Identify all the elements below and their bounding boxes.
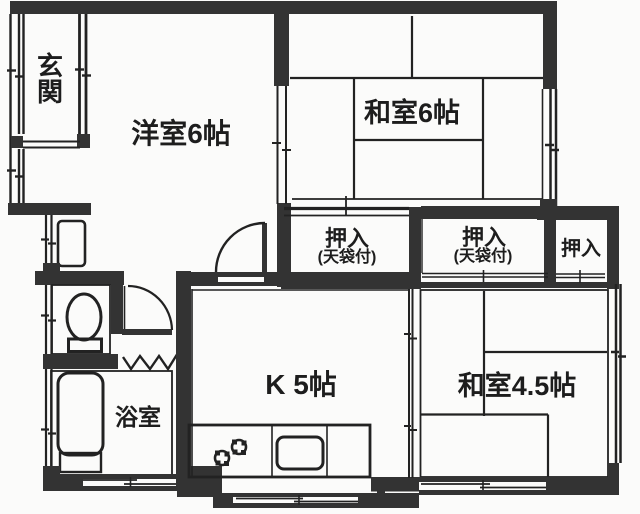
- svg-text:K 5帖: K 5帖: [265, 369, 337, 400]
- svg-text:押入: 押入: [325, 226, 369, 251]
- svg-text:和室4.5帖: 和室4.5帖: [458, 370, 577, 401]
- svg-text:(天袋付): (天袋付): [454, 246, 513, 265]
- svg-text:浴室: 浴室: [115, 404, 161, 430]
- svg-text:洋室6帖: 洋室6帖: [131, 117, 231, 149]
- svg-text:押入: 押入: [462, 225, 506, 250]
- svg-text:関: 関: [37, 77, 63, 107]
- svg-text:和室6帖: 和室6帖: [364, 97, 460, 128]
- svg-text:押入: 押入: [561, 236, 601, 260]
- svg-text:(天袋付): (天袋付): [318, 247, 377, 266]
